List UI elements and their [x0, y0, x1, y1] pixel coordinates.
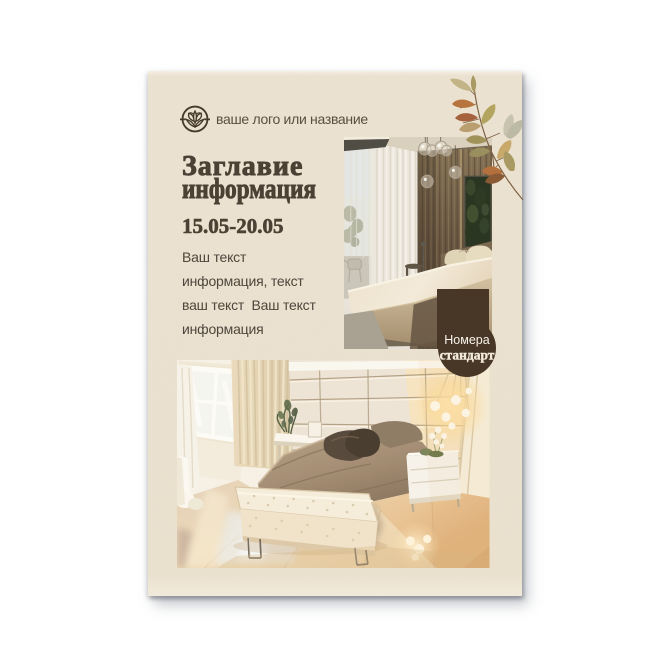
- svg-text:Номера: Номера: [444, 333, 489, 347]
- svg-text:стандарт: стандарт: [440, 348, 495, 363]
